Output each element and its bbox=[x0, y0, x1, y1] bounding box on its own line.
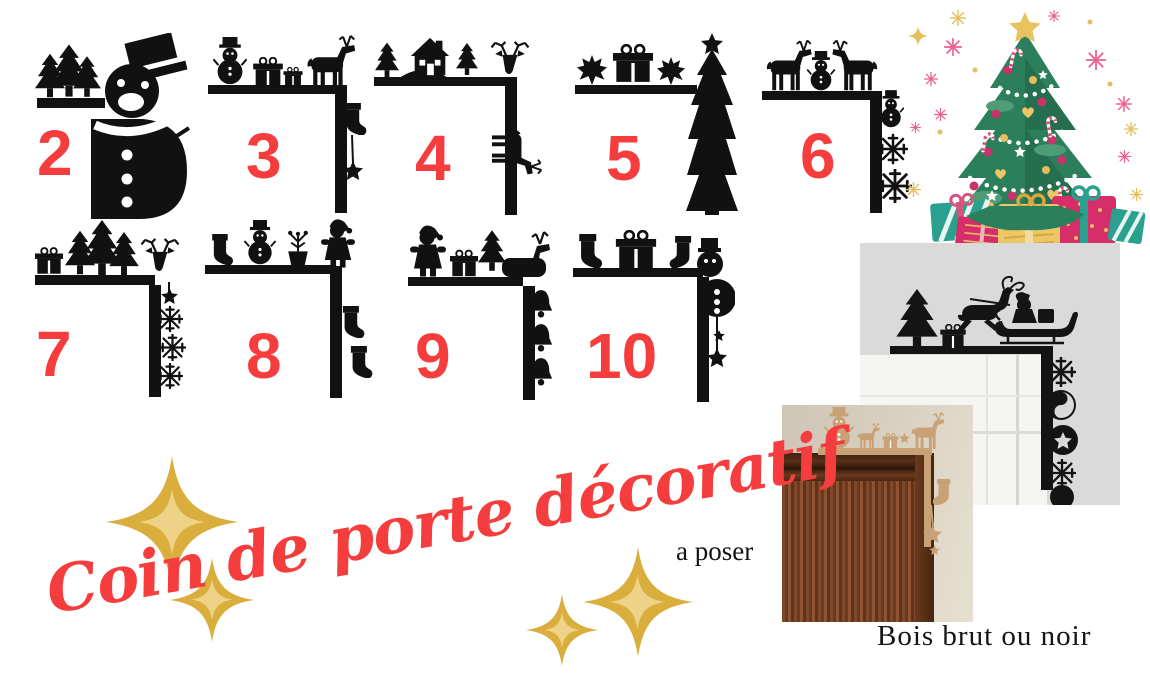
design-number: 9 bbox=[415, 324, 451, 388]
corner-design-10: 10 bbox=[571, 218, 735, 402]
deer-pair-snowman-corner-icon bbox=[758, 33, 916, 218]
leaves-gift-tree-corner-icon bbox=[573, 33, 739, 215]
design-number: 4 bbox=[415, 126, 451, 190]
caption-bois-brut: Bois brut ou noir bbox=[877, 620, 1091, 653]
corner-design-4: 4 bbox=[372, 33, 547, 215]
corner-design-2: 2 bbox=[35, 33, 190, 219]
design-number: 5 bbox=[606, 126, 642, 190]
product-collage: 2 3 4 bbox=[0, 0, 1150, 700]
house-stag-corner-icon bbox=[372, 33, 547, 215]
corner-design-8: 8 bbox=[203, 218, 375, 400]
design-number: 2 bbox=[37, 121, 73, 185]
caption-a-poser: a poser bbox=[676, 536, 753, 567]
christmas-tree-illustration bbox=[900, 10, 1150, 248]
corner-design-3: 3 bbox=[205, 35, 367, 215]
stocking-snowman-santa-corner-icon bbox=[203, 218, 375, 400]
design-number: 3 bbox=[246, 124, 282, 188]
snowman-gifts-deer-corner-icon bbox=[205, 35, 367, 215]
design-number: 10 bbox=[586, 324, 657, 388]
resting-deer-icon bbox=[502, 232, 550, 277]
corner-design-5: 5 bbox=[573, 33, 739, 215]
corner-design-7: 7 bbox=[33, 220, 188, 400]
flying-reindeer-icon bbox=[958, 277, 1024, 332]
design-number: 8 bbox=[246, 324, 282, 388]
gift-boxes bbox=[930, 187, 1146, 248]
design-number: 7 bbox=[36, 322, 72, 386]
corner-design-9: 9 bbox=[406, 220, 556, 400]
design-number: 6 bbox=[800, 124, 836, 188]
corner-design-6: 6 bbox=[758, 33, 916, 218]
gold-sparkle-small bbox=[526, 594, 598, 666]
